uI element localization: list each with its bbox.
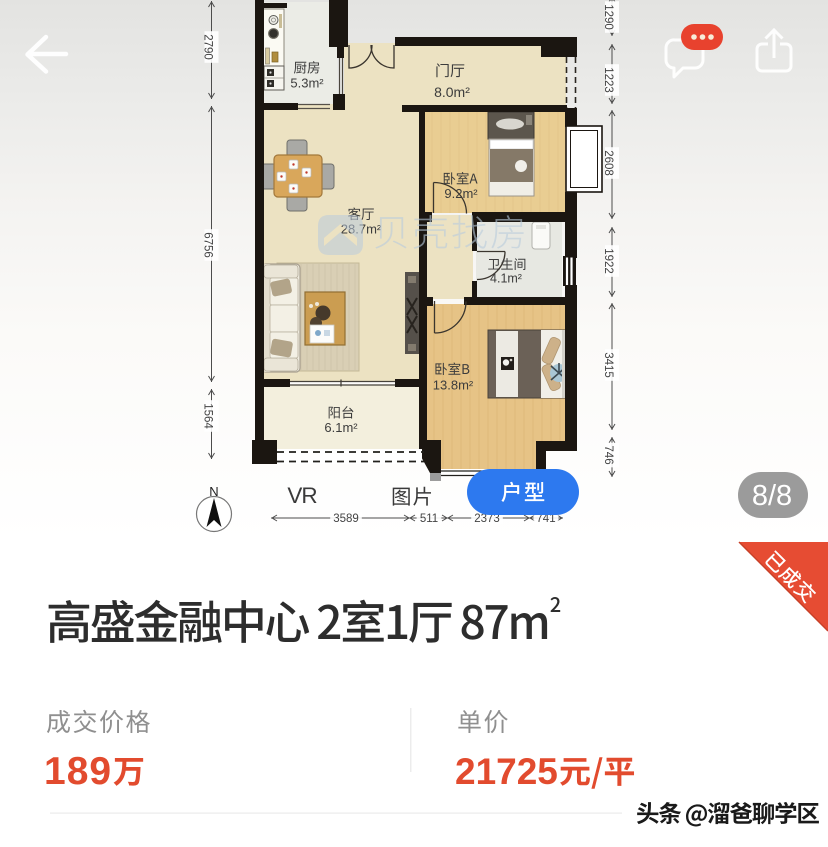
svg-text:2608: 2608 bbox=[602, 150, 614, 176]
svg-text:5.3m²: 5.3m² bbox=[290, 76, 324, 91]
svg-text:13.8m²: 13.8m² bbox=[433, 378, 474, 393]
svg-text:189: 189 bbox=[44, 750, 112, 793]
svg-text:6.1m²: 6.1m² bbox=[324, 420, 358, 435]
svg-text:2790: 2790 bbox=[201, 34, 213, 60]
svg-text:511: 511 bbox=[420, 513, 438, 525]
svg-text:8.0m²: 8.0m² bbox=[434, 84, 470, 100]
svg-text:21725: 21725 bbox=[455, 751, 558, 792]
svg-text:1564: 1564 bbox=[201, 403, 213, 429]
svg-text:1922: 1922 bbox=[602, 248, 614, 274]
svg-text:N: N bbox=[209, 484, 218, 499]
svg-text:6756: 6756 bbox=[201, 232, 213, 258]
svg-text:4.1m²: 4.1m² bbox=[490, 272, 522, 286]
svg-text:3415: 3415 bbox=[602, 352, 614, 378]
svg-text:8/8: 8/8 bbox=[752, 480, 792, 512]
svg-text:746: 746 bbox=[602, 445, 614, 464]
svg-text:1290: 1290 bbox=[602, 4, 614, 30]
svg-text:3589: 3589 bbox=[333, 513, 359, 525]
svg-text:VR: VR bbox=[287, 483, 317, 508]
svg-text:9.2m²: 9.2m² bbox=[444, 186, 478, 201]
svg-text:1223: 1223 bbox=[602, 67, 614, 93]
